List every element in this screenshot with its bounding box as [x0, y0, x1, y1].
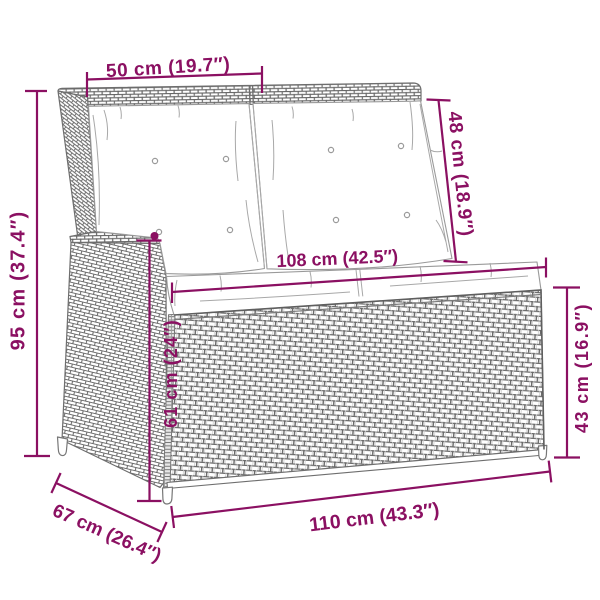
svg-text:50 cm (19.7″): 50 cm (19.7″) [105, 54, 230, 83]
svg-text:48 cm (18.9″): 48 cm (18.9″) [443, 110, 476, 237]
svg-text:67 cm (26.4″): 67 cm (26.4″) [50, 499, 165, 565]
svg-text:61 cm (24″): 61 cm (24″) [161, 319, 181, 428]
svg-text:95 cm (37.4″): 95 cm (37.4″) [8, 211, 30, 351]
svg-text:110 cm (43.3″): 110 cm (43.3″) [308, 499, 440, 537]
svg-text:43 cm (16.9″): 43 cm (16.9″) [572, 303, 592, 433]
